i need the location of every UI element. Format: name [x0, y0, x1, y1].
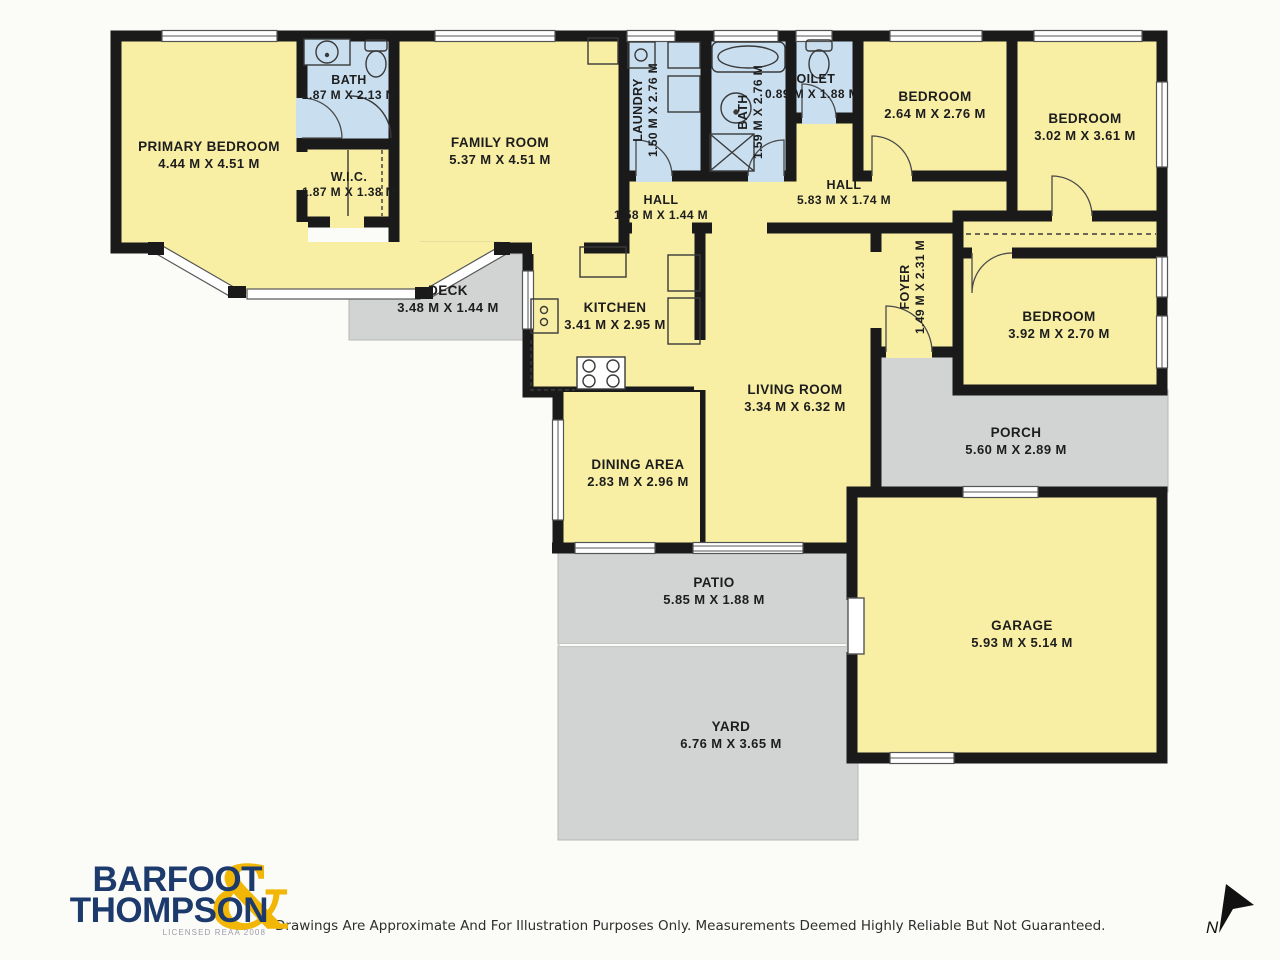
logo-license: LICENSED REAA 2008: [163, 928, 266, 937]
room-label-kitchen: KITCHEN3.41 M X 2.95 M: [564, 299, 665, 333]
bath1-sink-icon: [304, 39, 350, 65]
garage-side-door: [848, 598, 864, 654]
room-label-toilet: TOILET0.89 M X 1.88 M: [765, 71, 859, 103]
compass-north-label: N: [1206, 918, 1218, 938]
floorplan-page: PRIMARY BEDROOM4.44 M X 4.51 M BATH1.87 …: [0, 0, 1280, 960]
room-label-primary-bedroom: PRIMARY BEDROOM4.44 M X 4.51 M: [138, 138, 280, 172]
room-label-bath-2: BATH1.59 M X 2.76 M: [735, 65, 767, 159]
room-label-yard: YARD6.76 M X 3.65 M: [680, 718, 781, 752]
room-label-wic: W.I.C.1.87 M X 1.38 M: [302, 169, 396, 201]
room-label-family-room: FAMILY ROOM5.37 M X 4.51 M: [449, 134, 550, 168]
stove-icon: [577, 357, 625, 389]
north-arrow-icon: [1219, 884, 1254, 933]
room-label-bath-1: BATH1.87 M X 2.13 M: [302, 72, 396, 104]
room-label-bedroom-2: BEDROOM2.64 M X 2.76 M: [884, 88, 985, 122]
room-label-foyer: FOYER1.49 M X 2.31 M: [897, 240, 929, 334]
room-label-bedroom-3: BEDROOM3.02 M X 3.61 M: [1034, 110, 1135, 144]
logo-line2: THOMPSON: [70, 893, 268, 928]
room-label-patio: PATIO5.85 M X 1.88 M: [663, 574, 764, 608]
room-label-porch: PORCH5.60 M X 2.89 M: [965, 424, 1066, 458]
room-label-dining-area: DINING AREA2.83 M X 2.96 M: [587, 456, 688, 490]
room-label-garage: GARAGE5.93 M X 5.14 M: [971, 617, 1072, 651]
room-label-bedroom-4: BEDROOM3.92 M X 2.70 M: [1008, 308, 1109, 342]
room-label-deck: DECK3.48 M X 1.44 M: [397, 282, 498, 316]
room-label-hall-long: HALL5.83 M X 1.74 M: [797, 177, 891, 209]
disclaimer-text: Drawings Are Approximate And For Illustr…: [275, 918, 1105, 934]
room-label-living-room: LIVING ROOM3.34 M X 6.32 M: [744, 381, 845, 415]
room-label-hall-small: HALL1.58 M X 1.44 M: [614, 192, 708, 224]
room-label-laundry: LAUNDRY1.50 M X 2.76 M: [630, 63, 662, 157]
barfoot-thompson-logo: & BARFOOT THOMPSON LICENSED REAA 2008: [58, 860, 308, 938]
